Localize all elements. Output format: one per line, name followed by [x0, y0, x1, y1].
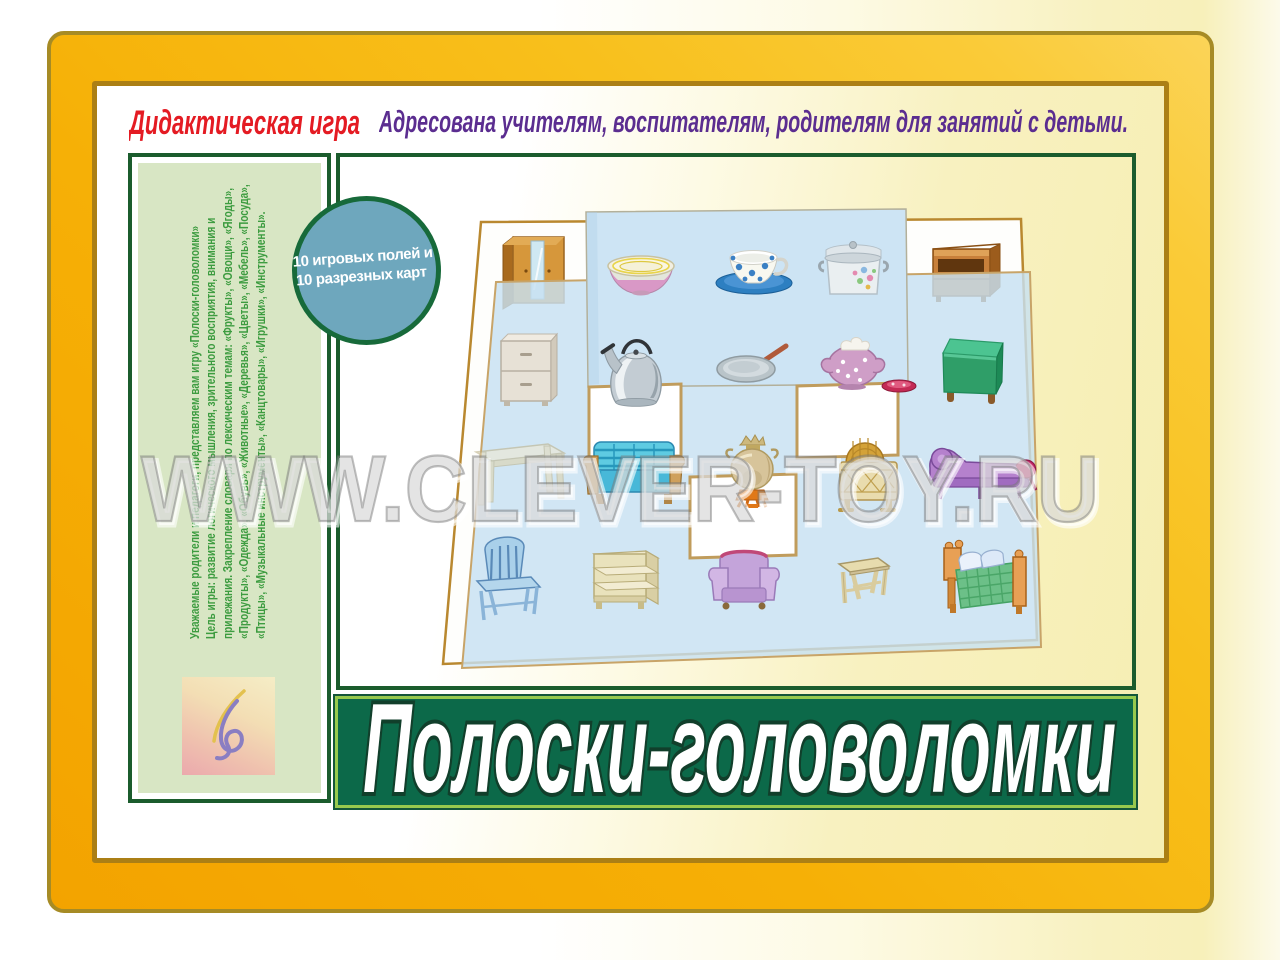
svg-text:Полоски-головоломки: Полоски-головоломки [363, 690, 1116, 810]
svg-text:WWW.CLEVER-TOY.RU: WWW.CLEVER-TOY.RU [141, 436, 1099, 541]
svg-text:Адресована учителям, воспитате: Адресована учителям, воспитателям, родит… [379, 104, 1128, 139]
svg-text:Дидактическая игра: Дидактическая игра [129, 104, 360, 142]
